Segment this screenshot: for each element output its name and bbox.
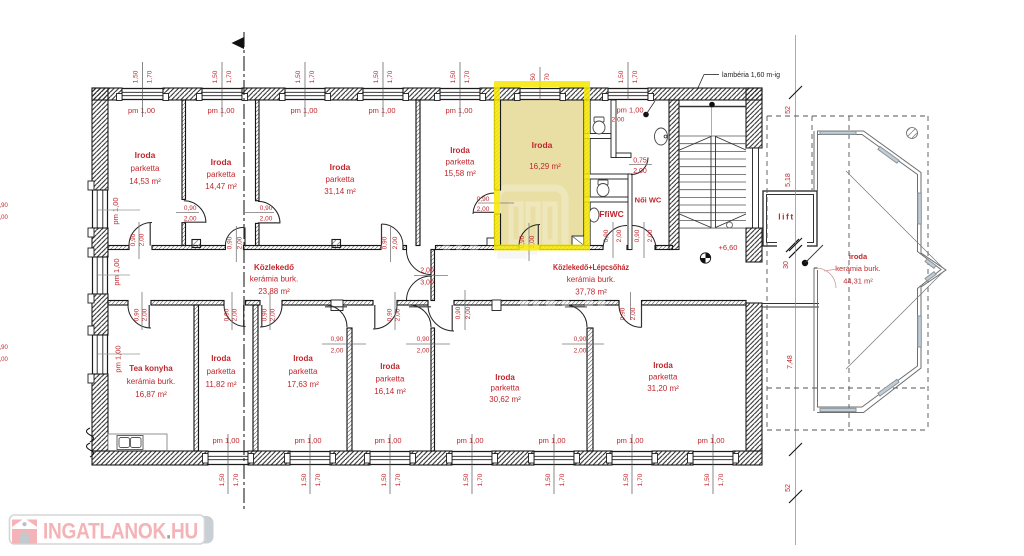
svg-text:Közlekedő+Lépcsőház: Közlekedő+Lépcsőház: [553, 263, 629, 272]
svg-text:pm 1,00: pm 1,00: [445, 106, 472, 115]
svg-text:2,00: 2,00: [0, 215, 8, 221]
svg-text:Női WC: Női WC: [635, 196, 662, 205]
svg-text:Iroda: Iroda: [380, 362, 400, 371]
svg-text:1,50: 1,50: [704, 473, 711, 486]
svg-text:1,70: 1,70: [309, 70, 316, 83]
svg-text:37,78 m²: 37,78 m²: [575, 288, 607, 297]
svg-text:2,00: 2,00: [232, 308, 239, 321]
svg-text:1,50: 1,50: [623, 473, 630, 486]
svg-text:16,87 m²: 16,87 m²: [135, 390, 167, 399]
svg-text:3,00: 3,00: [420, 280, 434, 287]
svg-text:parketta: parketta: [376, 375, 405, 384]
svg-text:Iroda: Iroda: [135, 150, 156, 160]
svg-text:1,70: 1,70: [387, 70, 394, 83]
svg-text:2,00: 2,00: [142, 308, 149, 321]
svg-text:Tea konyha: Tea konyha: [129, 364, 173, 373]
svg-text:pm 1,00: pm 1,00: [538, 436, 565, 445]
svg-text:1,70: 1,70: [147, 70, 154, 83]
svg-text:2,00: 2,00: [633, 168, 647, 175]
svg-text:pm 1,00: pm 1,00: [112, 258, 121, 285]
svg-text:parketta: parketta: [491, 384, 520, 393]
svg-text:11,82 m²: 11,82 m²: [206, 380, 237, 389]
svg-text:INGATLANOK.HU: INGATLANOK.HU: [43, 519, 198, 544]
svg-text:iroda: iroda: [849, 252, 868, 261]
svg-text:0,90: 0,90: [477, 196, 490, 203]
svg-text:31,20 m²: 31,20 m²: [647, 384, 679, 393]
svg-text:2,00: 2,00: [139, 233, 146, 246]
svg-text:kerámia burk.: kerámia burk.: [250, 275, 298, 284]
svg-text:Iroda: Iroda: [211, 354, 231, 363]
svg-text:1,70: 1,70: [718, 473, 725, 486]
svg-text:kerámia burk.: kerámia burk.: [127, 377, 175, 386]
svg-text:2,00: 2,00: [612, 117, 625, 124]
svg-text:2,00: 2,00: [331, 348, 344, 355]
svg-text:1,50: 1,50: [295, 70, 302, 83]
svg-text:14,47 m²: 14,47 m²: [205, 182, 237, 191]
svg-text:1,50: 1,50: [212, 70, 219, 83]
svg-text:pm 1,00: pm 1,00: [616, 106, 643, 115]
svg-text:1,50: 1,50: [463, 473, 470, 486]
svg-text:parketta: parketta: [131, 164, 160, 173]
svg-text:2,00: 2,00: [616, 229, 623, 242]
svg-text:pm 1,00: pm 1,00: [368, 106, 395, 115]
svg-text:parketta: parketta: [649, 373, 678, 382]
svg-text:parketta: parketta: [446, 158, 475, 167]
svg-text:0,90: 0,90: [0, 203, 8, 209]
svg-text:1,70: 1,70: [637, 473, 644, 486]
svg-text:1,50: 1,50: [133, 70, 140, 83]
svg-text:1,70: 1,70: [477, 473, 484, 486]
svg-text:30: 30: [783, 261, 790, 269]
svg-text:1,50: 1,50: [373, 70, 380, 83]
svg-text:5,18: 5,18: [785, 173, 792, 187]
svg-text:Iroda: Iroda: [450, 146, 470, 155]
svg-text:0,90: 0,90: [0, 345, 8, 351]
svg-text:lambéria 1,60 m-ig: lambéria 1,60 m-ig: [722, 72, 780, 79]
svg-text:2,00: 2,00: [392, 236, 399, 249]
svg-text:pm 1,00: pm 1,00: [207, 106, 234, 115]
svg-text:pm 1,00: pm 1,00: [456, 436, 483, 445]
svg-text:0,90: 0,90: [455, 306, 462, 319]
svg-text:2,00: 2,00: [647, 229, 654, 242]
svg-text:50: 50: [530, 73, 537, 81]
svg-text:31,14 m²: 31,14 m²: [324, 187, 356, 196]
svg-text:parketta: parketta: [207, 367, 236, 376]
svg-text:0,75: 0,75: [633, 158, 647, 165]
svg-text:1,70: 1,70: [315, 473, 322, 486]
svg-text:52: 52: [785, 106, 792, 114]
svg-text:1,50: 1,50: [219, 473, 226, 486]
svg-text:1,70: 1,70: [395, 473, 402, 486]
svg-text:0,90: 0,90: [331, 336, 344, 343]
svg-text:2,00: 2,00: [260, 216, 273, 223]
svg-text:17,63 m²: 17,63 m²: [287, 380, 319, 389]
svg-text:pm 1,00: pm 1,00: [374, 436, 401, 445]
svg-text:2,00: 2,00: [477, 206, 490, 213]
svg-text:0,90: 0,90: [634, 229, 641, 242]
svg-text:1,50: 1,50: [450, 70, 457, 83]
svg-text:Iroda: Iroda: [495, 373, 515, 382]
svg-text:parketta: parketta: [326, 175, 355, 184]
svg-text:parketta: parketta: [289, 367, 318, 376]
svg-text:2,00: 2,00: [420, 268, 434, 275]
svg-text:23,88 m²: 23,88 m²: [258, 287, 290, 296]
svg-text:pm 1,00: pm 1,00: [616, 436, 643, 445]
svg-text:1,50: 1,50: [545, 473, 552, 486]
svg-text:Iroda: Iroda: [211, 157, 232, 167]
svg-text:1,50: 1,50: [381, 473, 388, 486]
svg-text:1,50: 1,50: [301, 473, 308, 486]
svg-text:Iroda: Iroda: [293, 354, 313, 363]
svg-text:0,90: 0,90: [184, 205, 197, 212]
svg-text:0,90: 0,90: [574, 336, 587, 343]
svg-text:kerámia burk.: kerámia burk.: [567, 275, 615, 284]
svg-text:16,29 m²: 16,29 m²: [529, 162, 561, 171]
svg-text:2,00: 2,00: [270, 308, 277, 321]
svg-text:Iroda: Iroda: [653, 361, 673, 370]
svg-text:44,31 m²: 44,31 m²: [843, 277, 873, 286]
svg-text:Iroda: Iroda: [330, 162, 351, 172]
svg-text:2,00: 2,00: [236, 236, 243, 249]
svg-text:lift: lift: [778, 212, 794, 222]
svg-text:0,90: 0,90: [417, 336, 430, 343]
svg-text:0,90: 0,90: [226, 236, 233, 249]
svg-text:0,90: 0,90: [134, 308, 141, 321]
svg-text:Közlekedő: Közlekedő: [254, 263, 294, 272]
svg-text:1,70: 1,70: [233, 473, 240, 486]
svg-text:2,00: 2,00: [417, 348, 430, 355]
svg-text:0,90: 0,90: [260, 205, 273, 212]
svg-text:2,00: 2,00: [465, 306, 472, 319]
svg-text:0,90: 0,90: [620, 307, 627, 320]
svg-text:pm 1,00: pm 1,00: [294, 436, 321, 445]
svg-text:2,00: 2,00: [184, 216, 197, 223]
svg-text:pm 1,00: pm 1,00: [128, 106, 155, 115]
svg-text:7,48: 7,48: [787, 355, 794, 369]
svg-text:2,00: 2,00: [574, 348, 587, 355]
svg-text:1,70: 1,70: [632, 70, 639, 83]
svg-text:pm 1,00: pm 1,00: [697, 436, 724, 445]
svg-text:Iroda: Iroda: [532, 140, 553, 150]
svg-text:14,53 m²: 14,53 m²: [129, 177, 161, 186]
svg-text:+6,60: +6,60: [719, 243, 738, 252]
svg-text:0,90: 0,90: [381, 236, 388, 249]
svg-text:16,14 m²: 16,14 m²: [374, 387, 406, 396]
svg-text:0,90: 0,90: [224, 308, 231, 321]
svg-text:FfiWC: FfiWC: [599, 209, 624, 219]
svg-text:0,90: 0,90: [603, 229, 610, 242]
svg-text:pm 1,00: pm 1,00: [114, 345, 123, 372]
svg-text:52: 52: [785, 484, 792, 492]
svg-text:1,50: 1,50: [618, 70, 625, 83]
svg-text:2,00: 2,00: [0, 357, 8, 363]
svg-text:parketta: parketta: [207, 170, 236, 179]
svg-text:2,00: 2,00: [630, 307, 637, 320]
svg-text:1,70: 1,70: [226, 70, 233, 83]
svg-text:0,90: 0,90: [130, 233, 137, 246]
svg-text:1,70: 1,70: [464, 70, 471, 83]
svg-text:pm 1,00: pm 1,00: [290, 106, 317, 115]
svg-text:15,58 m²: 15,58 m²: [444, 169, 476, 178]
svg-text:0,90: 0,90: [387, 308, 394, 321]
svg-text:70: 70: [544, 73, 551, 81]
svg-text:30,62 m²: 30,62 m²: [489, 395, 521, 404]
svg-text:pm 1,00: pm 1,00: [111, 197, 120, 224]
svg-text:2,00: 2,00: [395, 308, 402, 321]
svg-text:0,90: 0,90: [262, 308, 269, 321]
svg-text:pm 1,00: pm 1,00: [212, 436, 239, 445]
svg-text:1,70: 1,70: [559, 473, 566, 486]
